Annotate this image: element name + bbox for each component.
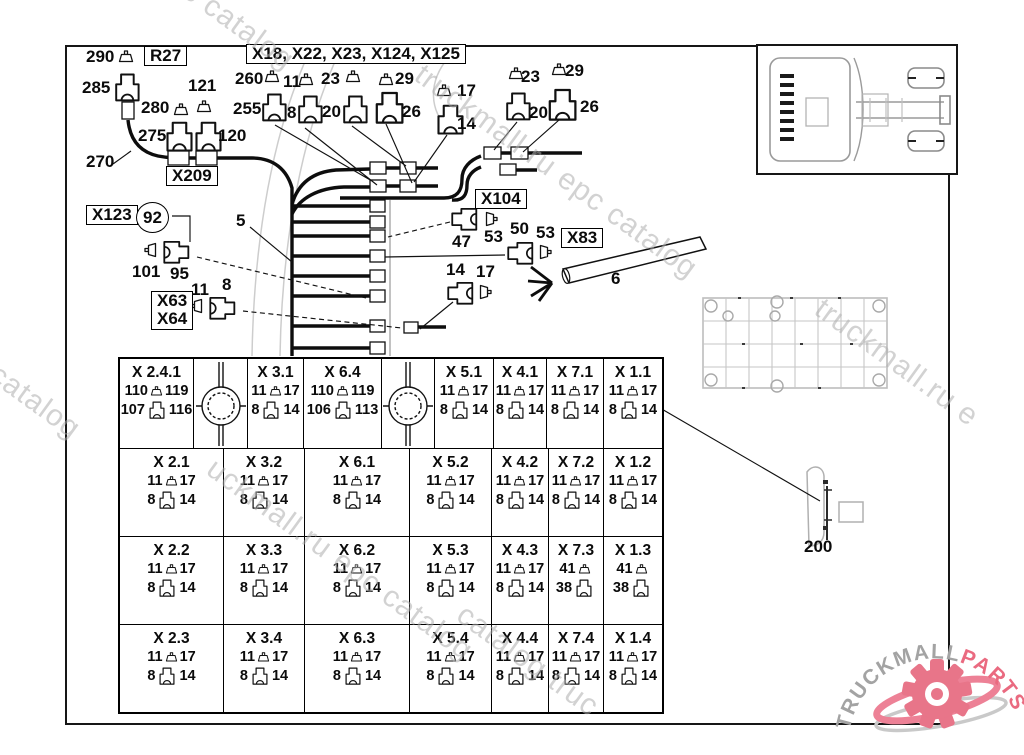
table-row: X 2.11117814X 3.21117814X 6.11117814X 5.… [120,449,662,537]
housing-range: 814 [147,666,195,685]
grille-bars [780,74,794,141]
housing-range: 814 [147,490,195,509]
connector-name: X 5.4 [432,630,468,648]
pin-range: 1117 [240,473,288,489]
housing-range: 814 [251,400,299,419]
connector-cell-X-1-2: X 1.21117814 [604,449,662,536]
connector-name: X 3.2 [246,454,282,472]
connector-cell-X-5-4: X 5.41117814 [410,625,492,712]
connector-name: X 6.4 [324,364,360,382]
connector-cell-X-5-2: X 5.21117814 [410,449,492,536]
housing-range: 814 [551,400,599,419]
housing-range: 814 [240,490,288,509]
housing-range: 814 [147,578,195,597]
connector-name: X 2.3 [153,630,189,648]
connector-cell-X-3-2: X 3.21117814 [224,449,305,536]
table-row: X 2.4.1110119107116X 3.11117814X 6.41101… [120,359,662,449]
connector-name: X 7.3 [558,542,594,560]
grommet-icon [196,362,246,446]
location-key-box [756,44,958,175]
pin-range: 41 [559,561,592,577]
housing-range: 814 [333,578,381,597]
housing-range: 814 [609,490,657,509]
connector-cell-X-2-2: X 2.21117814 [120,537,224,624]
connector-name: X 6.1 [339,454,375,472]
pin-range: 1117 [333,561,381,577]
housing-range: 814 [496,400,544,419]
housing-range: 814 [333,666,381,685]
pin-range: 1117 [609,383,657,399]
connector-cell-X-1-3: X 1.34138 [604,537,662,624]
pin-range: 1117 [147,561,195,577]
housing-range: 814 [552,666,600,685]
connector-name: X 6.3 [339,630,375,648]
connector-cell-X-6-3: X 6.31117814 [305,625,410,712]
housing-range: 814 [426,578,474,597]
pin-range: 1117 [609,473,657,489]
connector-name: X 1.1 [615,364,651,382]
connector-cell-X-7-4: X 7.41117814 [549,625,604,712]
connector-name: X 7.2 [558,454,594,472]
pin-range: 1117 [251,383,299,399]
connector-name: X 2.2 [153,542,189,560]
connector-cell-X-7-2: X 7.21117814 [549,449,604,536]
housing-range: 38 [556,578,596,597]
housing-range: 814 [496,578,544,597]
pin-range: 1117 [552,649,600,665]
connector-cell-X-4-2: X 4.21117814 [492,449,549,536]
table-row: X 2.21117814X 3.31117814X 6.21117814X 5.… [120,537,662,625]
pin-range: 1117 [333,649,381,665]
pin-range: 1117 [552,473,600,489]
grommet-cell [194,359,248,448]
connector-name: X 1.4 [615,630,651,648]
pin-range: 110119 [311,383,375,399]
connector-name: X 6.2 [339,542,375,560]
pin-range: 41 [616,561,649,577]
connector-cell-X-4-4: X 4.41117814 [492,625,549,712]
pin-range: 1117 [426,649,474,665]
connector-name: X 4.4 [502,630,538,648]
connector-cell-X-7-1: X 7.11117814 [547,359,604,448]
pin-range: 1117 [496,473,544,489]
connector-cell-X-4-3: X 4.31117814 [492,537,549,624]
connector-cell-X-2-4-1: X 2.4.1110119107116 [120,359,194,448]
connector-name: X 4.3 [502,542,538,560]
pin-range: 1117 [496,383,544,399]
pin-range: 1117 [551,383,599,399]
connector-cell-X-7-3: X 7.34138 [549,537,604,624]
connector-name: X 1.2 [615,454,651,472]
connector-cell-X-6-1: X 6.11117814 [305,449,410,536]
connector-name: X 4.1 [502,364,538,382]
connector-name: X 3.1 [257,364,293,382]
grommet-cell [382,359,435,448]
grommet-icon [383,362,433,446]
housing-range: 814 [440,400,488,419]
connector-cell-X-2-1: X 2.11117814 [120,449,224,536]
housing-range: 38 [613,578,653,597]
connector-cell-X-6-4: X 6.4110119106113 [304,359,382,448]
connector-name: X 1.3 [615,542,651,560]
connector-name: X 2.1 [153,454,189,472]
connector-name: X 5.2 [432,454,468,472]
connector-cell-X-6-2: X 6.21117814 [305,537,410,624]
connector-name: X 2.4.1 [132,364,181,382]
connector-name: X 7.4 [558,630,594,648]
housing-range: 814 [240,666,288,685]
pin-range: 1117 [496,561,544,577]
connector-name: X 5.1 [446,364,482,382]
connector-cell-X-3-1: X 3.11117814 [248,359,304,448]
housing-range: 814 [496,666,544,685]
connector-name: X 3.4 [246,630,282,648]
connector-name: X 7.1 [557,364,593,382]
connector-cell-X-4-1: X 4.11117814 [494,359,547,448]
pin-range: 1117 [240,649,288,665]
connector-cell-X-5-1: X 5.11117814 [435,359,494,448]
connector-name: X 4.2 [502,454,538,472]
housing-range: 106113 [307,400,379,419]
pin-range: 1117 [333,473,381,489]
table-row: X 2.31117814X 3.41117814X 6.31117814X 5.… [120,625,662,712]
housing-range: 814 [333,490,381,509]
connector-cell-X-2-3: X 2.31117814 [120,625,224,712]
pin-range: 110119 [125,383,189,399]
connector-name: X 5.3 [432,542,468,560]
connector-table: X 2.4.1110119107116X 3.11117814X 6.41101… [118,357,664,714]
pin-range: 1117 [147,473,195,489]
housing-range: 107116 [121,400,193,419]
housing-range: 814 [496,490,544,509]
pin-range: 1117 [426,473,474,489]
housing-range: 814 [426,490,474,509]
pin-range: 1117 [440,383,488,399]
housing-range: 814 [609,400,657,419]
housing-range: 814 [240,578,288,597]
housing-range: 814 [609,666,657,685]
connector-name: X 3.3 [246,542,282,560]
pin-range: 1117 [609,649,657,665]
truck-top-view [758,46,956,173]
pin-range: 1117 [240,561,288,577]
connector-cell-X-1-1: X 1.11117814 [604,359,662,448]
connector-cell-X-3-3: X 3.31117814 [224,537,305,624]
connector-cell-X-3-4: X 3.41117814 [224,625,305,712]
logo-text-parts: PARTS [957,645,1024,715]
housing-range: 814 [552,490,600,509]
connector-cell-X-5-3: X 5.31117814 [410,537,492,624]
pin-range: 1117 [426,561,474,577]
pin-range: 1117 [496,649,544,665]
housing-range: 814 [426,666,474,685]
pin-range: 1117 [147,649,195,665]
connector-cell-X-1-4: X 1.41117814 [604,625,662,712]
